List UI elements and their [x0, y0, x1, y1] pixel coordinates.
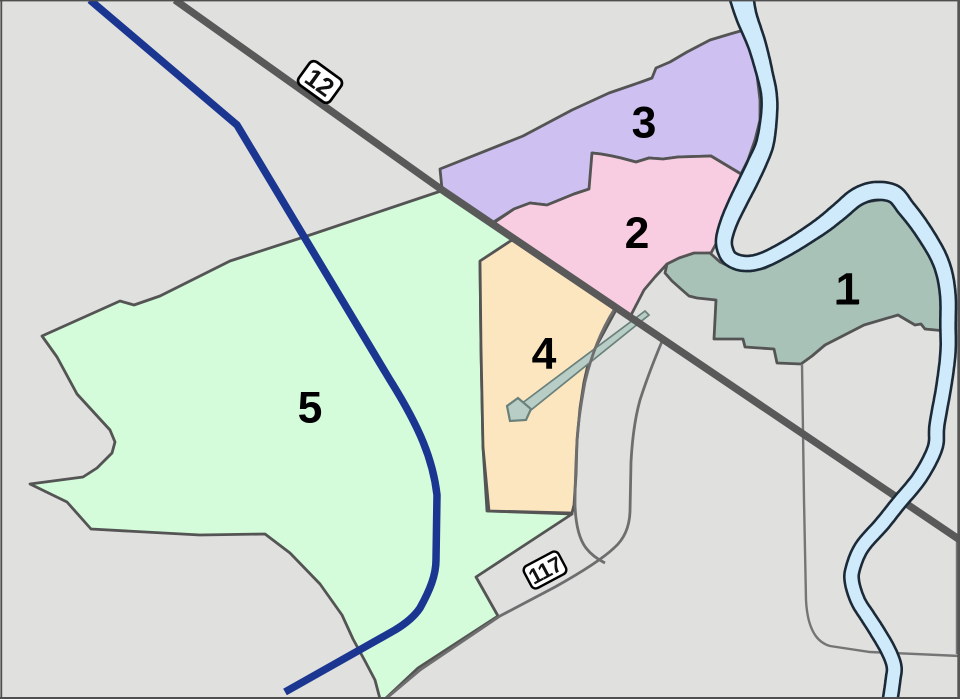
svg-text:4: 4 — [532, 330, 557, 379]
svg-text:5: 5 — [298, 384, 323, 433]
svg-text:2: 2 — [625, 209, 650, 258]
svg-text:3: 3 — [632, 99, 657, 148]
svg-text:1: 1 — [836, 265, 861, 314]
